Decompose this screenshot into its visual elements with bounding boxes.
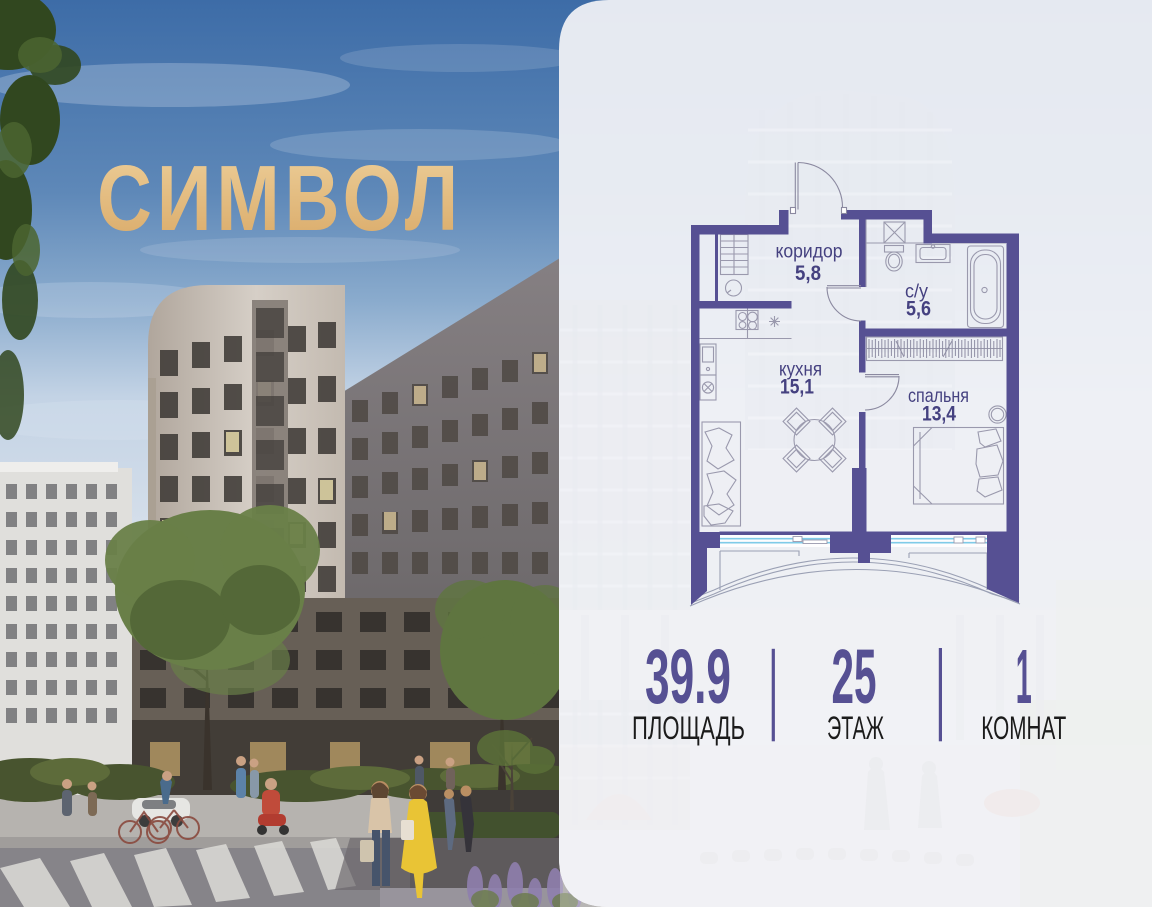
svg-text:ПЛОЩАДЬ: ПЛОЩАДЬ (632, 710, 745, 746)
svg-text:15,1: 15,1 (780, 375, 814, 399)
svg-text:25: 25 (832, 634, 877, 720)
svg-text:КОМНАТ: КОМНАТ (981, 710, 1066, 746)
svg-text:коридор: коридор (776, 241, 843, 263)
svg-text:13,4: 13,4 (922, 402, 956, 426)
svg-text:5,6: 5,6 (906, 297, 931, 321)
svg-text:39.9: 39.9 (645, 634, 731, 720)
svg-text:СИМВОЛ: СИМВОЛ (97, 146, 463, 250)
svg-text:5,8: 5,8 (795, 261, 821, 285)
svg-text:1: 1 (1016, 634, 1032, 720)
svg-text:ЭТАЖ: ЭТАЖ (827, 710, 884, 746)
